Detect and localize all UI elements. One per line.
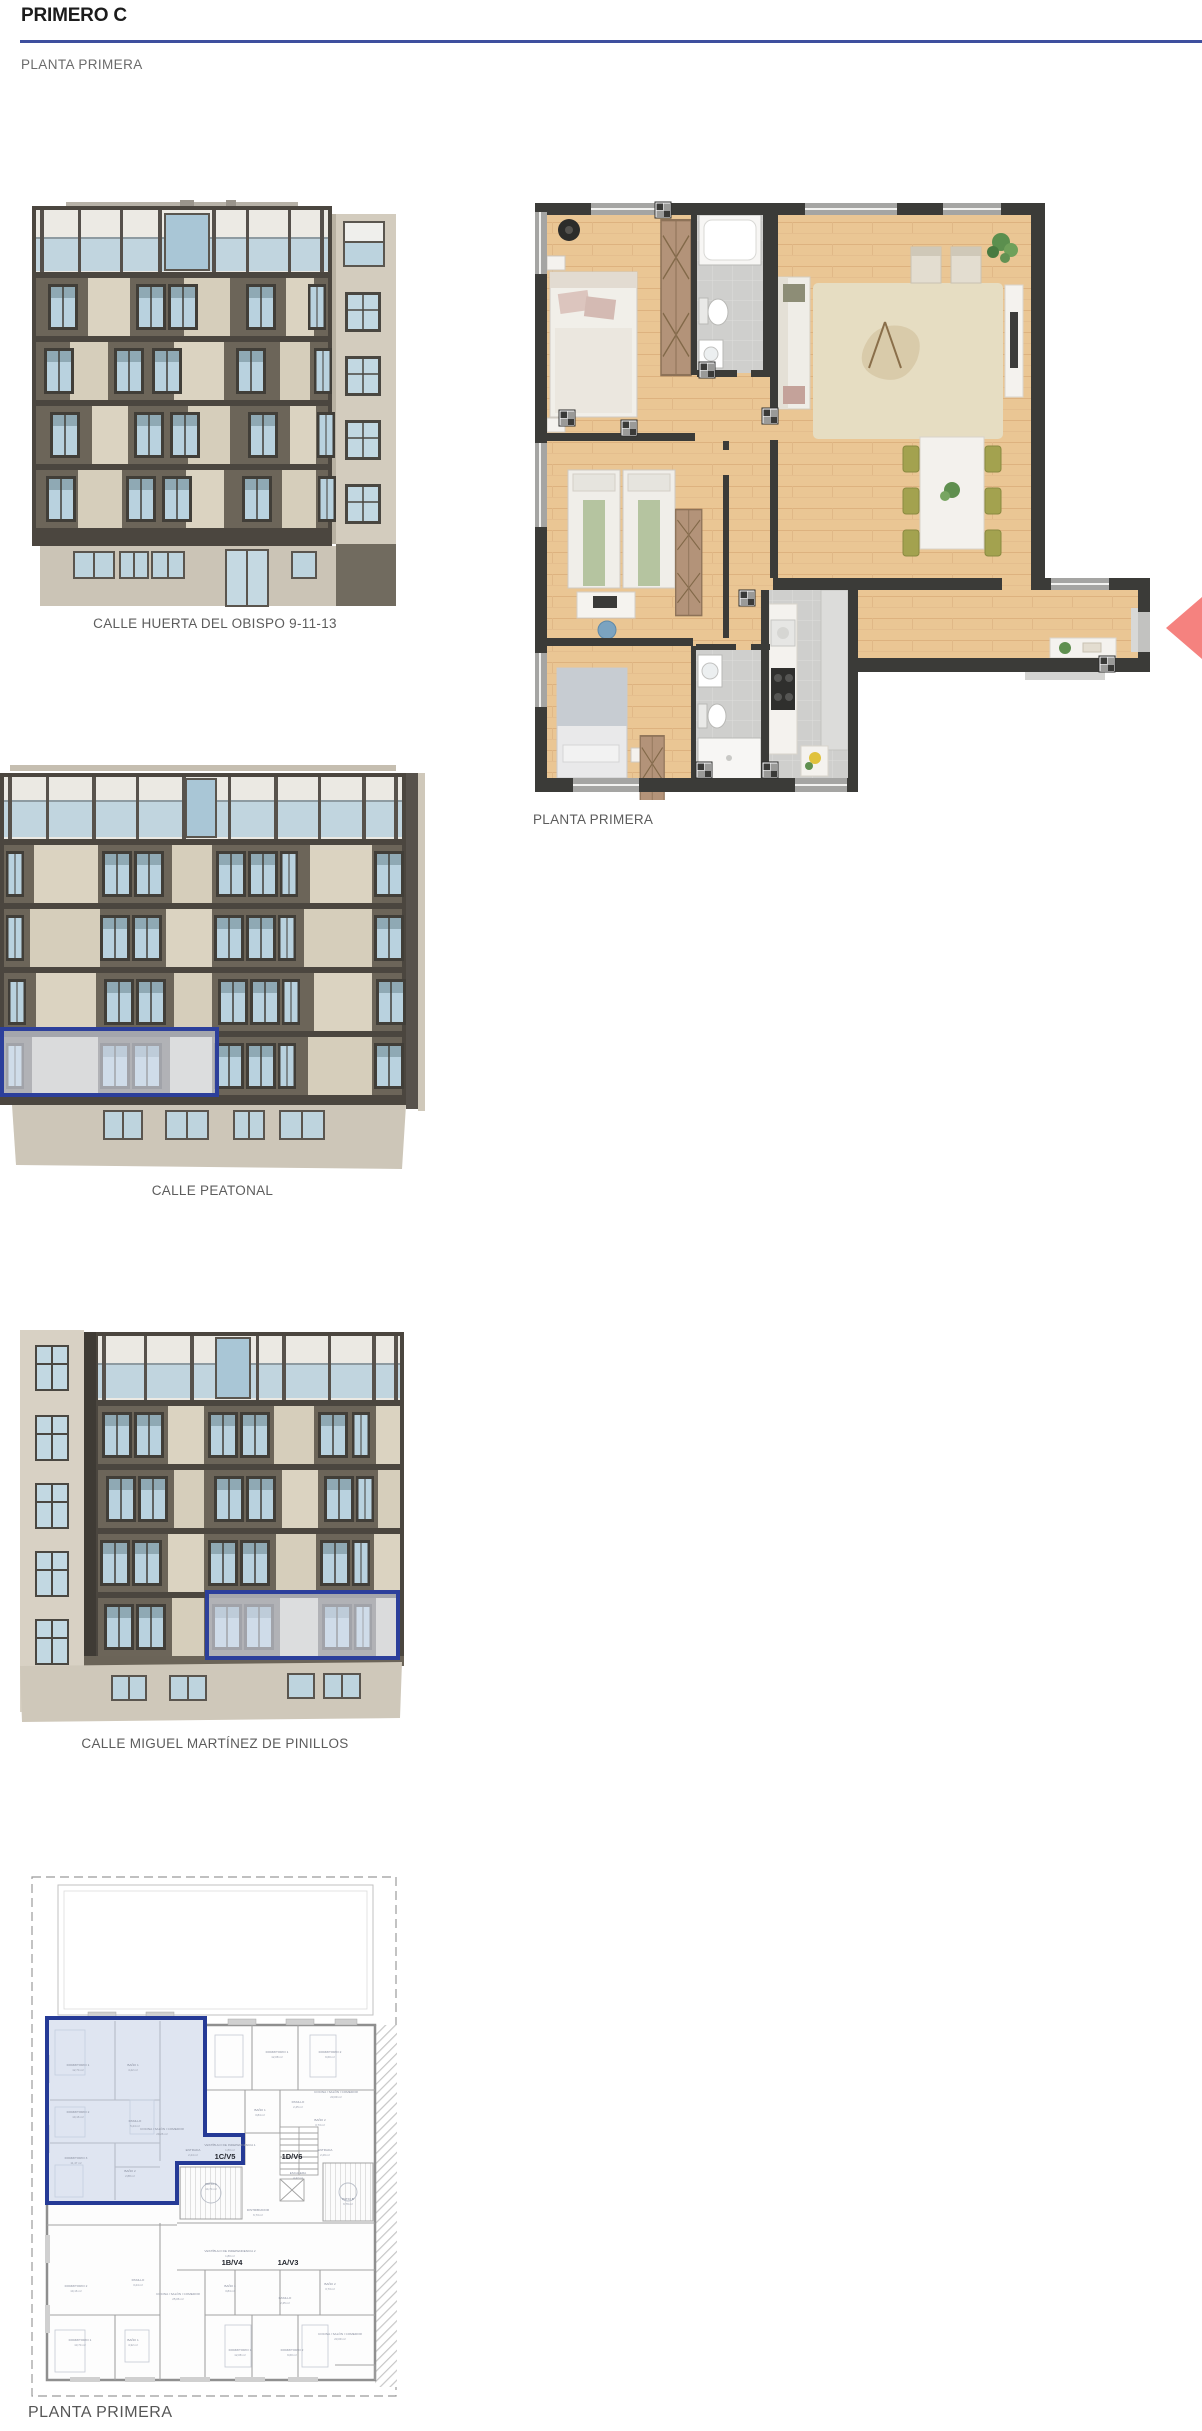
svg-text:BAÑO 1: BAÑO 1	[254, 2107, 266, 2112]
unit-label-1c: 1C/V5	[215, 2152, 236, 2161]
svg-text:10,16 m²: 10,16 m²	[70, 2289, 81, 2293]
svg-text:ENTRADA: ENTRADA	[186, 2148, 202, 2152]
svg-text:ENTRADA: ENTRADA	[318, 2148, 334, 2152]
svg-text:3,73 m²: 3,73 m²	[315, 2123, 325, 2127]
svg-text:4,32 m²: 4,32 m²	[128, 2343, 138, 2347]
svg-text:COCINA / SALÓN / COMEDOR: COCINA / SALÓN / COMEDOR	[314, 2089, 358, 2094]
svg-text:BAÑO 2: BAÑO 2	[324, 2281, 336, 2286]
svg-text:PASILLO: PASILLO	[132, 2278, 145, 2282]
svg-text:9,79 m²: 9,79 m²	[343, 2202, 353, 2206]
caption-elevation-obispo: CALLE HUERTA DEL OBISPO 9-11-13	[30, 616, 400, 631]
svg-text:4,42 m²: 4,42 m²	[293, 2176, 303, 2180]
unit-label-1a: 1A/V3	[278, 2258, 299, 2267]
svg-text:5,24 m²: 5,24 m²	[130, 2124, 140, 2128]
entrance-arrow-icon	[1166, 597, 1202, 659]
svg-text:PASILLO: PASILLO	[279, 2296, 292, 2300]
svg-text:2,45 m²: 2,45 m²	[280, 2301, 290, 2305]
svg-text:BAÑO 1: BAÑO 1	[127, 2337, 139, 2342]
svg-text:2,88 m²: 2,88 m²	[125, 2174, 135, 2178]
page-title: PRIMERO C	[21, 5, 127, 27]
svg-text:PASILLO: PASILLO	[292, 2100, 305, 2104]
building-elevation-peatonal	[0, 765, 425, 1175]
svg-text:1,80 m²: 1,80 m²	[225, 2254, 235, 2258]
floorplan-render	[533, 200, 1153, 800]
svg-text:COCINA / SALÓN / COMEDOR: COCINA / SALÓN / COMEDOR	[318, 2331, 362, 2336]
page-subtitle: PLANTA PRIMERA	[21, 57, 143, 72]
elevation-peatonal-figure	[0, 765, 425, 1175]
svg-text:3,84 m²: 3,84 m²	[255, 2113, 265, 2117]
svg-text:DORMITORIO 1: DORMITORIO 1	[229, 2348, 252, 2352]
svg-text:2,24 m²: 2,24 m²	[188, 2153, 198, 2157]
svg-text:14,74 m²: 14,74 m²	[205, 2187, 216, 2191]
svg-text:BAÑO 1: BAÑO 1	[127, 2062, 139, 2067]
svg-text:3,24 m²: 3,24 m²	[133, 2283, 143, 2287]
unit-label-1d: 1D/V6	[282, 2152, 303, 2161]
svg-text:10,16 m²: 10,16 m²	[72, 2115, 83, 2119]
caption-schematic: PLANTA PRIMERA	[28, 2404, 428, 2422]
floorplan-render-figure	[533, 200, 1153, 800]
svg-text:25,06 m²: 25,06 m²	[172, 2297, 183, 2301]
svg-text:DORMITORIO 3: DORMITORIO 3	[65, 2156, 88, 2160]
svg-text:29,26 m²: 29,26 m²	[156, 2132, 167, 2136]
svg-text:DISTRIBUIDOR: DISTRIBUIDOR	[247, 2208, 270, 2212]
svg-text:COCINA / SALÓN / COMEDOR: COCINA / SALÓN / COMEDOR	[156, 2291, 200, 2296]
svg-text:13,74 m²: 13,74 m²	[74, 2343, 85, 2347]
accent-rule	[20, 40, 1202, 43]
svg-text:3,73 m²: 3,73 m²	[325, 2287, 335, 2291]
svg-text:6,73 m²: 6,73 m²	[253, 2213, 263, 2217]
unit-highlight-pinillos	[207, 1592, 398, 1658]
svg-text:23,09 m²: 23,09 m²	[334, 2337, 345, 2341]
svg-text:VESTÍBULO DE INDEPENDENCIA 1: VESTÍBULO DE INDEPENDENCIA 1	[204, 2143, 256, 2147]
svg-text:DORMITORIO 2: DORMITORIO 2	[319, 2050, 342, 2054]
svg-text:BAÑO 2: BAÑO 2	[314, 2117, 326, 2122]
unit-label-1b: 1B/V4	[222, 2258, 244, 2267]
building-elevation-pinillos	[20, 1318, 410, 1730]
caption-floorplan-render: PLANTA PRIMERA	[533, 812, 1153, 827]
svg-text:ESCALERA: ESCALERA	[290, 2171, 307, 2175]
elevation-pinillos-figure	[20, 1318, 410, 1730]
svg-text:COCINA / SALÓN / COMEDOR: COCINA / SALÓN / COMEDOR	[140, 2126, 184, 2131]
building-elevation-obispo	[30, 200, 400, 610]
svg-text:DORMITORIO 2: DORMITORIO 2	[281, 2348, 304, 2352]
elevation-obispo-figure	[30, 200, 400, 610]
svg-text:PASILLO: PASILLO	[129, 2119, 142, 2123]
svg-text:BAÑO 1: BAÑO 1	[224, 2283, 236, 2288]
schematic-figure: 1C/V5 1D/V6 1B/V4 1A/V3 DORMITORIO 112,7…	[30, 1875, 400, 2400]
caption-elevation-pinillos: CALLE MIGUEL MARTÍNEZ DE PINILLOS	[20, 1736, 410, 1751]
svg-text:DORMITORIO 1: DORMITORIO 1	[67, 2063, 90, 2067]
svg-text:12,08 m²: 12,08 m²	[271, 2055, 282, 2059]
svg-text:PATIO A: PATIO A	[205, 2182, 218, 2186]
svg-text:9,60 m²: 9,60 m²	[287, 2353, 297, 2357]
unit-highlight-peatonal	[2, 1029, 217, 1095]
svg-text:2,45 m²: 2,45 m²	[293, 2105, 303, 2109]
svg-text:3,84 m²: 3,84 m²	[225, 2289, 235, 2293]
svg-text:1,80 m²: 1,80 m²	[225, 2148, 235, 2152]
caption-elevation-peatonal: CALLE PEATONAL	[0, 1183, 425, 1198]
svg-text:4,22 m²: 4,22 m²	[128, 2068, 138, 2072]
svg-text:BAÑO 2: BAÑO 2	[124, 2168, 136, 2173]
svg-text:23,09 m²: 23,09 m²	[330, 2095, 341, 2099]
svg-text:DORMITORIO 1: DORMITORIO 1	[266, 2050, 289, 2054]
svg-text:DORMITORIO 1: DORMITORIO 1	[69, 2338, 92, 2342]
svg-text:PATIO B: PATIO B	[342, 2197, 354, 2201]
svg-text:DORMITORIO 2: DORMITORIO 2	[65, 2284, 88, 2288]
svg-text:DORMITORIO 2: DORMITORIO 2	[67, 2110, 90, 2114]
svg-text:9,60 m²: 9,60 m²	[325, 2055, 335, 2059]
brochure-page: PRIMERO C PLANTA PRIMERA	[0, 0, 1202, 2431]
svg-text:2,29 m²: 2,29 m²	[320, 2153, 330, 2157]
svg-text:11,47 m²: 11,47 m²	[70, 2161, 81, 2165]
svg-text:12,74 m²: 12,74 m²	[72, 2068, 83, 2072]
schematic-floorplan: 1C/V5 1D/V6 1B/V4 1A/V3 DORMITORIO 112,7…	[30, 1875, 400, 2400]
svg-text:VESTÍBULO DE INDEPENDENCIA 2: VESTÍBULO DE INDEPENDENCIA 2	[204, 2249, 256, 2253]
svg-text:12,08 m²: 12,08 m²	[234, 2353, 245, 2357]
